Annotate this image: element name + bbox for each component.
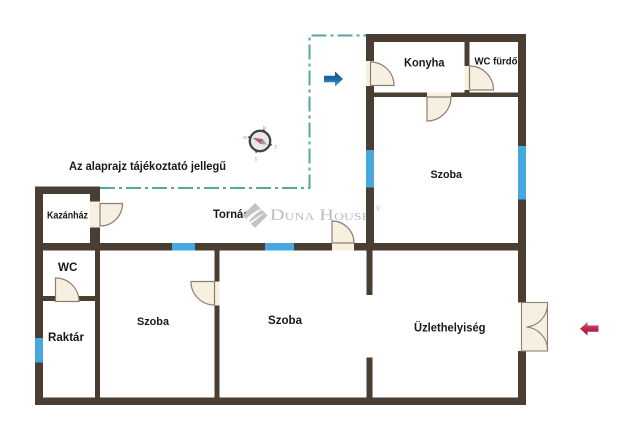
svg-text:Raktár: Raktár [48,332,85,344]
svg-text:Szoba: Szoba [268,315,303,327]
svg-text:Az alaprajz tájékoztató jelleg: Az alaprajz tájékoztató jellegű [69,159,226,173]
svg-text:WC: WC [58,262,78,274]
svg-text:Konyha: Konyha [404,58,445,70]
svg-text:N: N [263,125,266,130]
svg-text:Szoba: Szoba [137,316,170,328]
svg-text:S: S [254,157,257,162]
svg-text:WC fürdő: WC fürdő [475,57,518,68]
svg-text:®: ® [376,205,382,213]
svg-text:Kazánház: Kazánház [47,211,88,222]
svg-text:E: E [274,145,277,150]
svg-text:Szoba: Szoba [431,169,463,181]
svg-text:Duna House: Duna House [270,207,370,224]
svg-text:Üzlethelyiség: Üzlethelyiség [414,322,486,335]
